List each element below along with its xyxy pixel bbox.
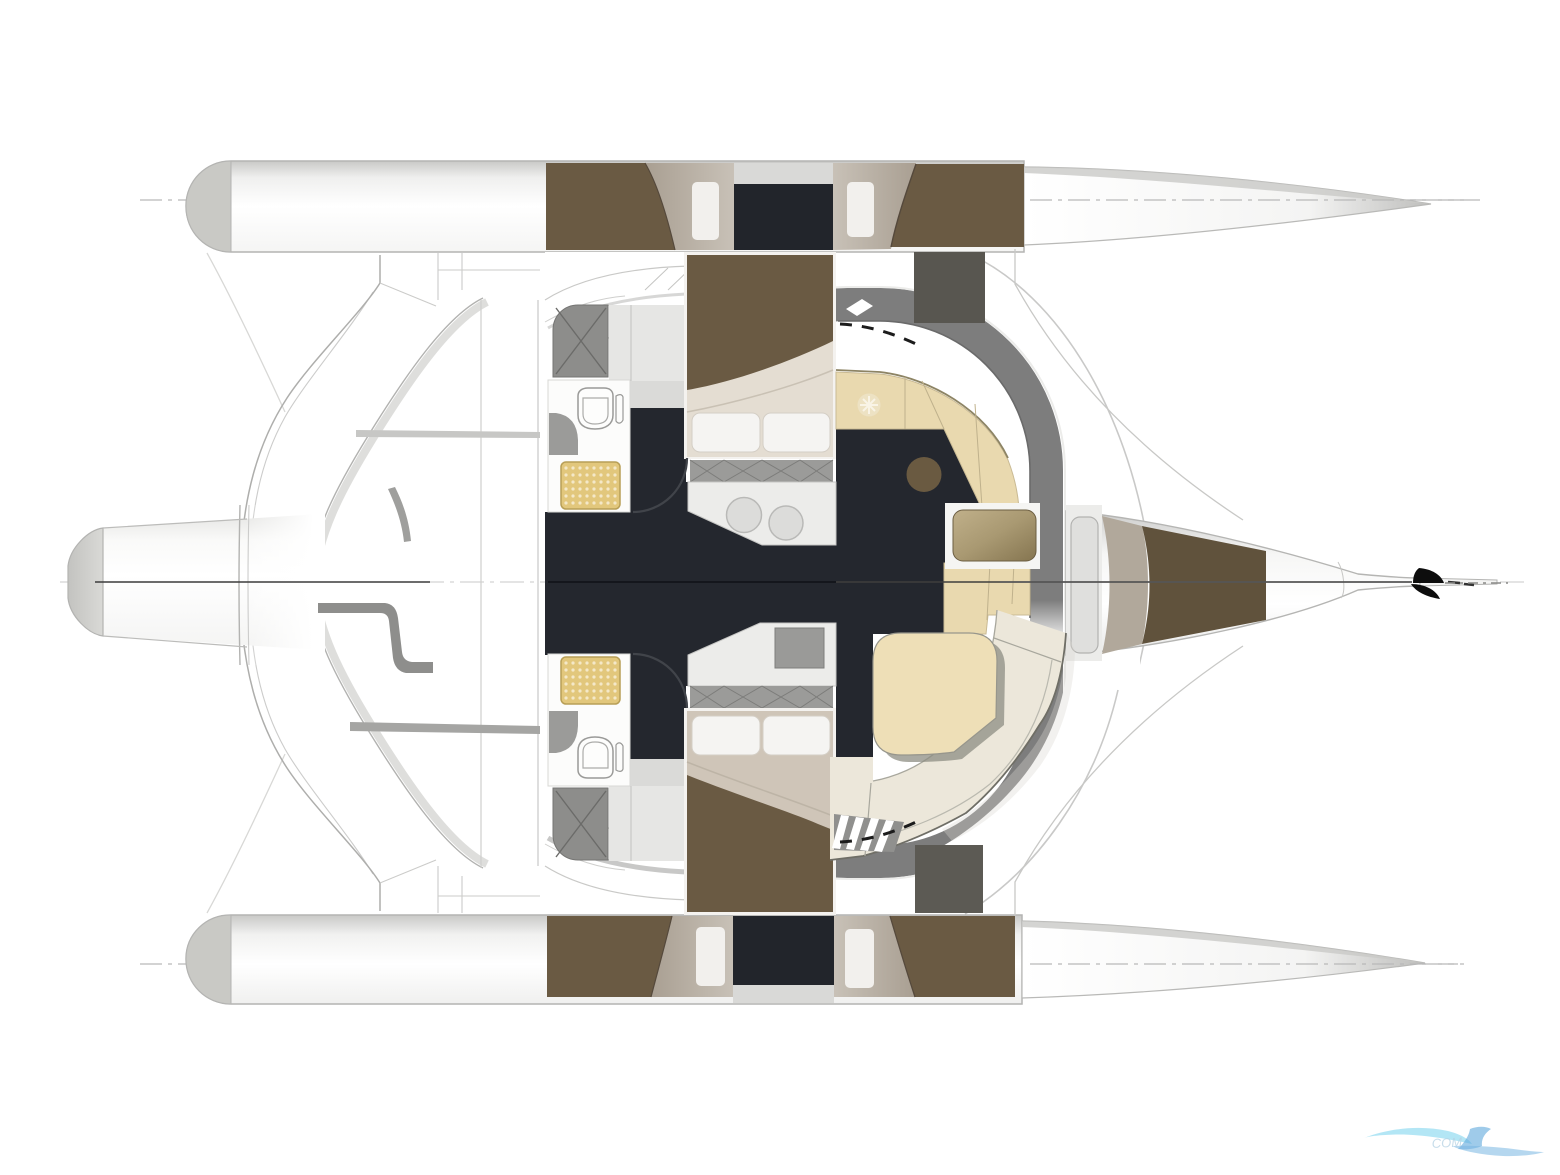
svg-text:COM: COM — [1431, 1134, 1462, 1151]
